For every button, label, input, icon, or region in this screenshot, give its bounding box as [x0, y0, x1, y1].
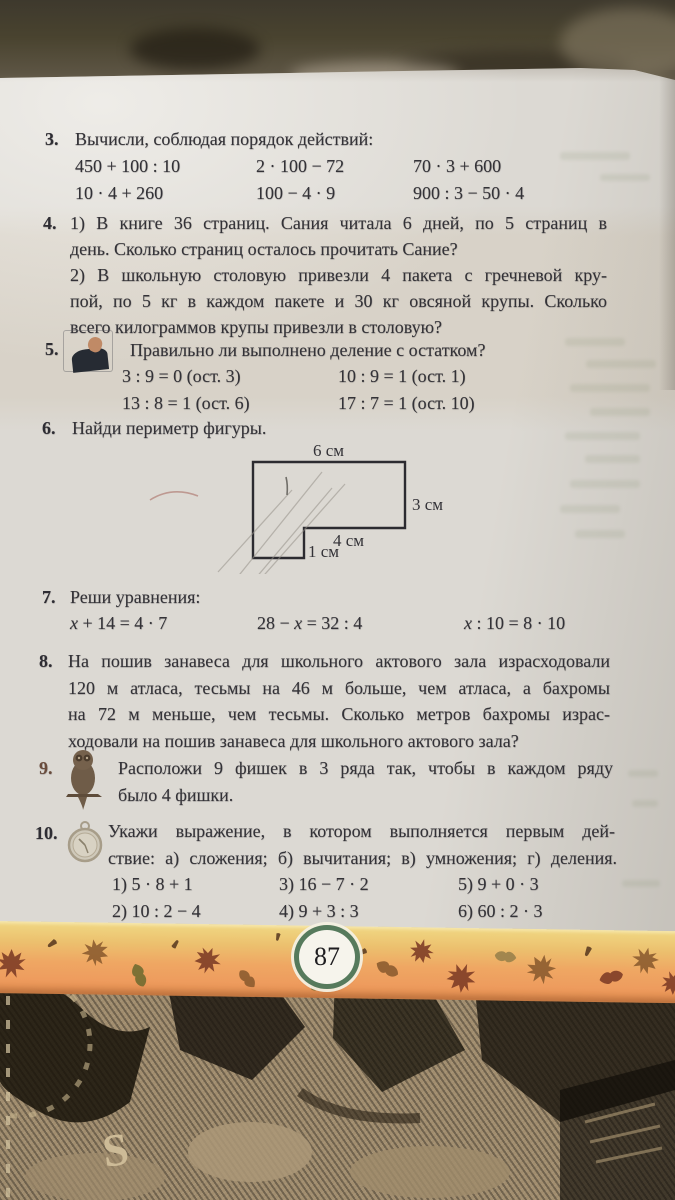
equation: x + 14 = 4 · 7 [70, 610, 167, 636]
problem-4-line: пой, по 5 кг в каждом пакете и 30 кг овс… [70, 288, 607, 314]
leaf-ornament [441, 958, 481, 998]
problem-7-title: Реши уравнения: [70, 584, 200, 610]
fabric-background: S [0, 972, 675, 1200]
problem-8-line: 120 м атласа, тесьмы на 46 м больше, чем… [68, 675, 610, 701]
leaf-ornament [598, 969, 624, 986]
page-bleed-through [570, 480, 640, 488]
leaf-ornament [494, 950, 517, 963]
textbook-photo: 3. Вычисли, соблюдая порядок действий: 4… [0, 0, 675, 1200]
problem-10-line: Укажи выражение, в котором выполняется п… [108, 818, 615, 844]
figure-label-notch: 1 см [308, 542, 339, 561]
perimeter-figure: 6 см 3 см 4 см 1 см [140, 432, 470, 574]
equation-variable: x [464, 613, 472, 633]
problem-5-title: Правильно ли выполнено деление с остатко… [130, 337, 485, 363]
problem-4-line: день. Сколько страниц осталось прочитать… [70, 236, 458, 262]
expression: 6) 60 : 2 · 3 [458, 898, 543, 924]
page-edge-shadow [659, 70, 675, 390]
problem-4-number: 4. [43, 210, 57, 236]
page-bleed-through [585, 455, 640, 463]
problem-6-number: 6. [42, 415, 56, 441]
division-check: 17 : 7 = 1 (ост. 10) [338, 390, 475, 416]
equation-rest: 28 − [257, 613, 294, 633]
leaf-ornament [194, 946, 222, 974]
expression: 100 − 4 · 9 [256, 180, 335, 206]
page-number: 87 [314, 942, 340, 972]
leaf-ornament [627, 942, 664, 979]
pocket-watch-icon [66, 820, 104, 864]
leaf-ornament [171, 939, 180, 949]
equation-rest: : 10 = 8 · 10 [472, 613, 565, 633]
page-bleed-through [565, 432, 640, 440]
problem-4-line: 1) В книге 36 страниц. Сания читала 6 дн… [70, 210, 607, 236]
problem-3-title: Вычисли, соблюдая порядок действий: [75, 126, 373, 152]
page-bleed-through [590, 408, 650, 416]
leaf-ornament [374, 958, 401, 980]
expression: 450 + 100 : 10 [75, 153, 180, 179]
expression: 5) 9 + 0 · 3 [458, 871, 539, 897]
leaf-ornament [130, 962, 149, 989]
expression: 900 : 3 − 50 · 4 [413, 180, 524, 206]
fabric-pattern: S [0, 972, 675, 1200]
leaf-ornament [275, 933, 281, 941]
expression: 4) 9 + 3 : 3 [279, 898, 359, 924]
page-bleed-through [632, 800, 658, 807]
equation-rest: + 14 = 4 · 7 [78, 613, 167, 633]
expression: 70 · 3 + 600 [413, 153, 501, 179]
equation-rest: = 32 : 4 [302, 613, 362, 633]
division-check: 10 : 9 = 1 (ост. 1) [338, 363, 466, 389]
expression: 3) 16 − 7 · 2 [279, 871, 369, 897]
figure-label-right: 3 см [412, 495, 443, 514]
page-bleed-through [560, 505, 620, 513]
problem-8-line: на 72 м меньше, чем тесьмы. Сколько метр… [68, 701, 610, 727]
division-check: 13 : 8 = 1 (ост. 6) [122, 390, 250, 416]
page-bleed-through [600, 174, 650, 181]
page-bleed-through [565, 338, 625, 346]
problem-4-line: 2) В школьную столовую привезли 4 пакета… [70, 262, 607, 288]
leaf-ornament [408, 938, 435, 965]
problem-9-line: было 4 фишки. [118, 782, 233, 808]
equation: 28 − x = 32 : 4 [257, 610, 362, 636]
problem-10-line: ствие: а) сложения; б) вычитания; в) умн… [108, 845, 617, 871]
owl-icon [64, 748, 104, 812]
page-bleed-through [586, 360, 656, 368]
page-bleed-through [560, 152, 630, 160]
page-number-badge: 87 [294, 925, 360, 989]
page-bleed-through [575, 530, 625, 538]
problem-5-number: 5. [45, 336, 59, 362]
leaf-ornament [79, 936, 111, 968]
problem-10-number: 10. [35, 820, 58, 846]
expression: 10 · 4 + 260 [75, 180, 163, 206]
leaf-ornament [0, 949, 26, 978]
problem-3-number: 3. [45, 126, 59, 152]
equation-variable: x [70, 613, 78, 633]
problem-9-number: 9. [39, 755, 53, 781]
expression: 2) 10 : 2 − 4 [112, 898, 201, 924]
leaf-ornament [236, 967, 258, 990]
illustration-figure [71, 347, 109, 373]
page-bleed-through [570, 384, 650, 392]
question-illustration [64, 331, 112, 371]
expression: 1) 5 · 8 + 1 [112, 871, 193, 897]
page-bleed-through [622, 880, 660, 887]
leaf-ornament [661, 971, 675, 995]
problem-7-number: 7. [42, 584, 56, 610]
leaf-ornament [522, 950, 561, 989]
problem-9-line: Расположи 9 фишек в 3 ряда так, чтобы в … [118, 755, 613, 781]
page-bleed-through [628, 770, 658, 777]
figure-label-top: 6 см [313, 441, 344, 460]
problem-8-line: ходовали на пошив занавеса для школьного… [68, 728, 519, 754]
problem-8-number: 8. [39, 648, 53, 674]
pencil-mark [286, 477, 287, 495]
equation-variable: x [294, 613, 302, 633]
red-pencil-mark [150, 492, 198, 500]
expression: 2 · 100 − 72 [256, 153, 344, 179]
leaf-ornament [46, 939, 57, 949]
equation: x : 10 = 8 · 10 [464, 610, 565, 636]
leaf-ornament [583, 946, 592, 957]
problem-8-line: На пошив занавеса для школьного актового… [68, 648, 610, 674]
table-shadow-blob [130, 28, 260, 70]
division-check: 3 : 9 = 0 (ост. 3) [122, 363, 241, 389]
